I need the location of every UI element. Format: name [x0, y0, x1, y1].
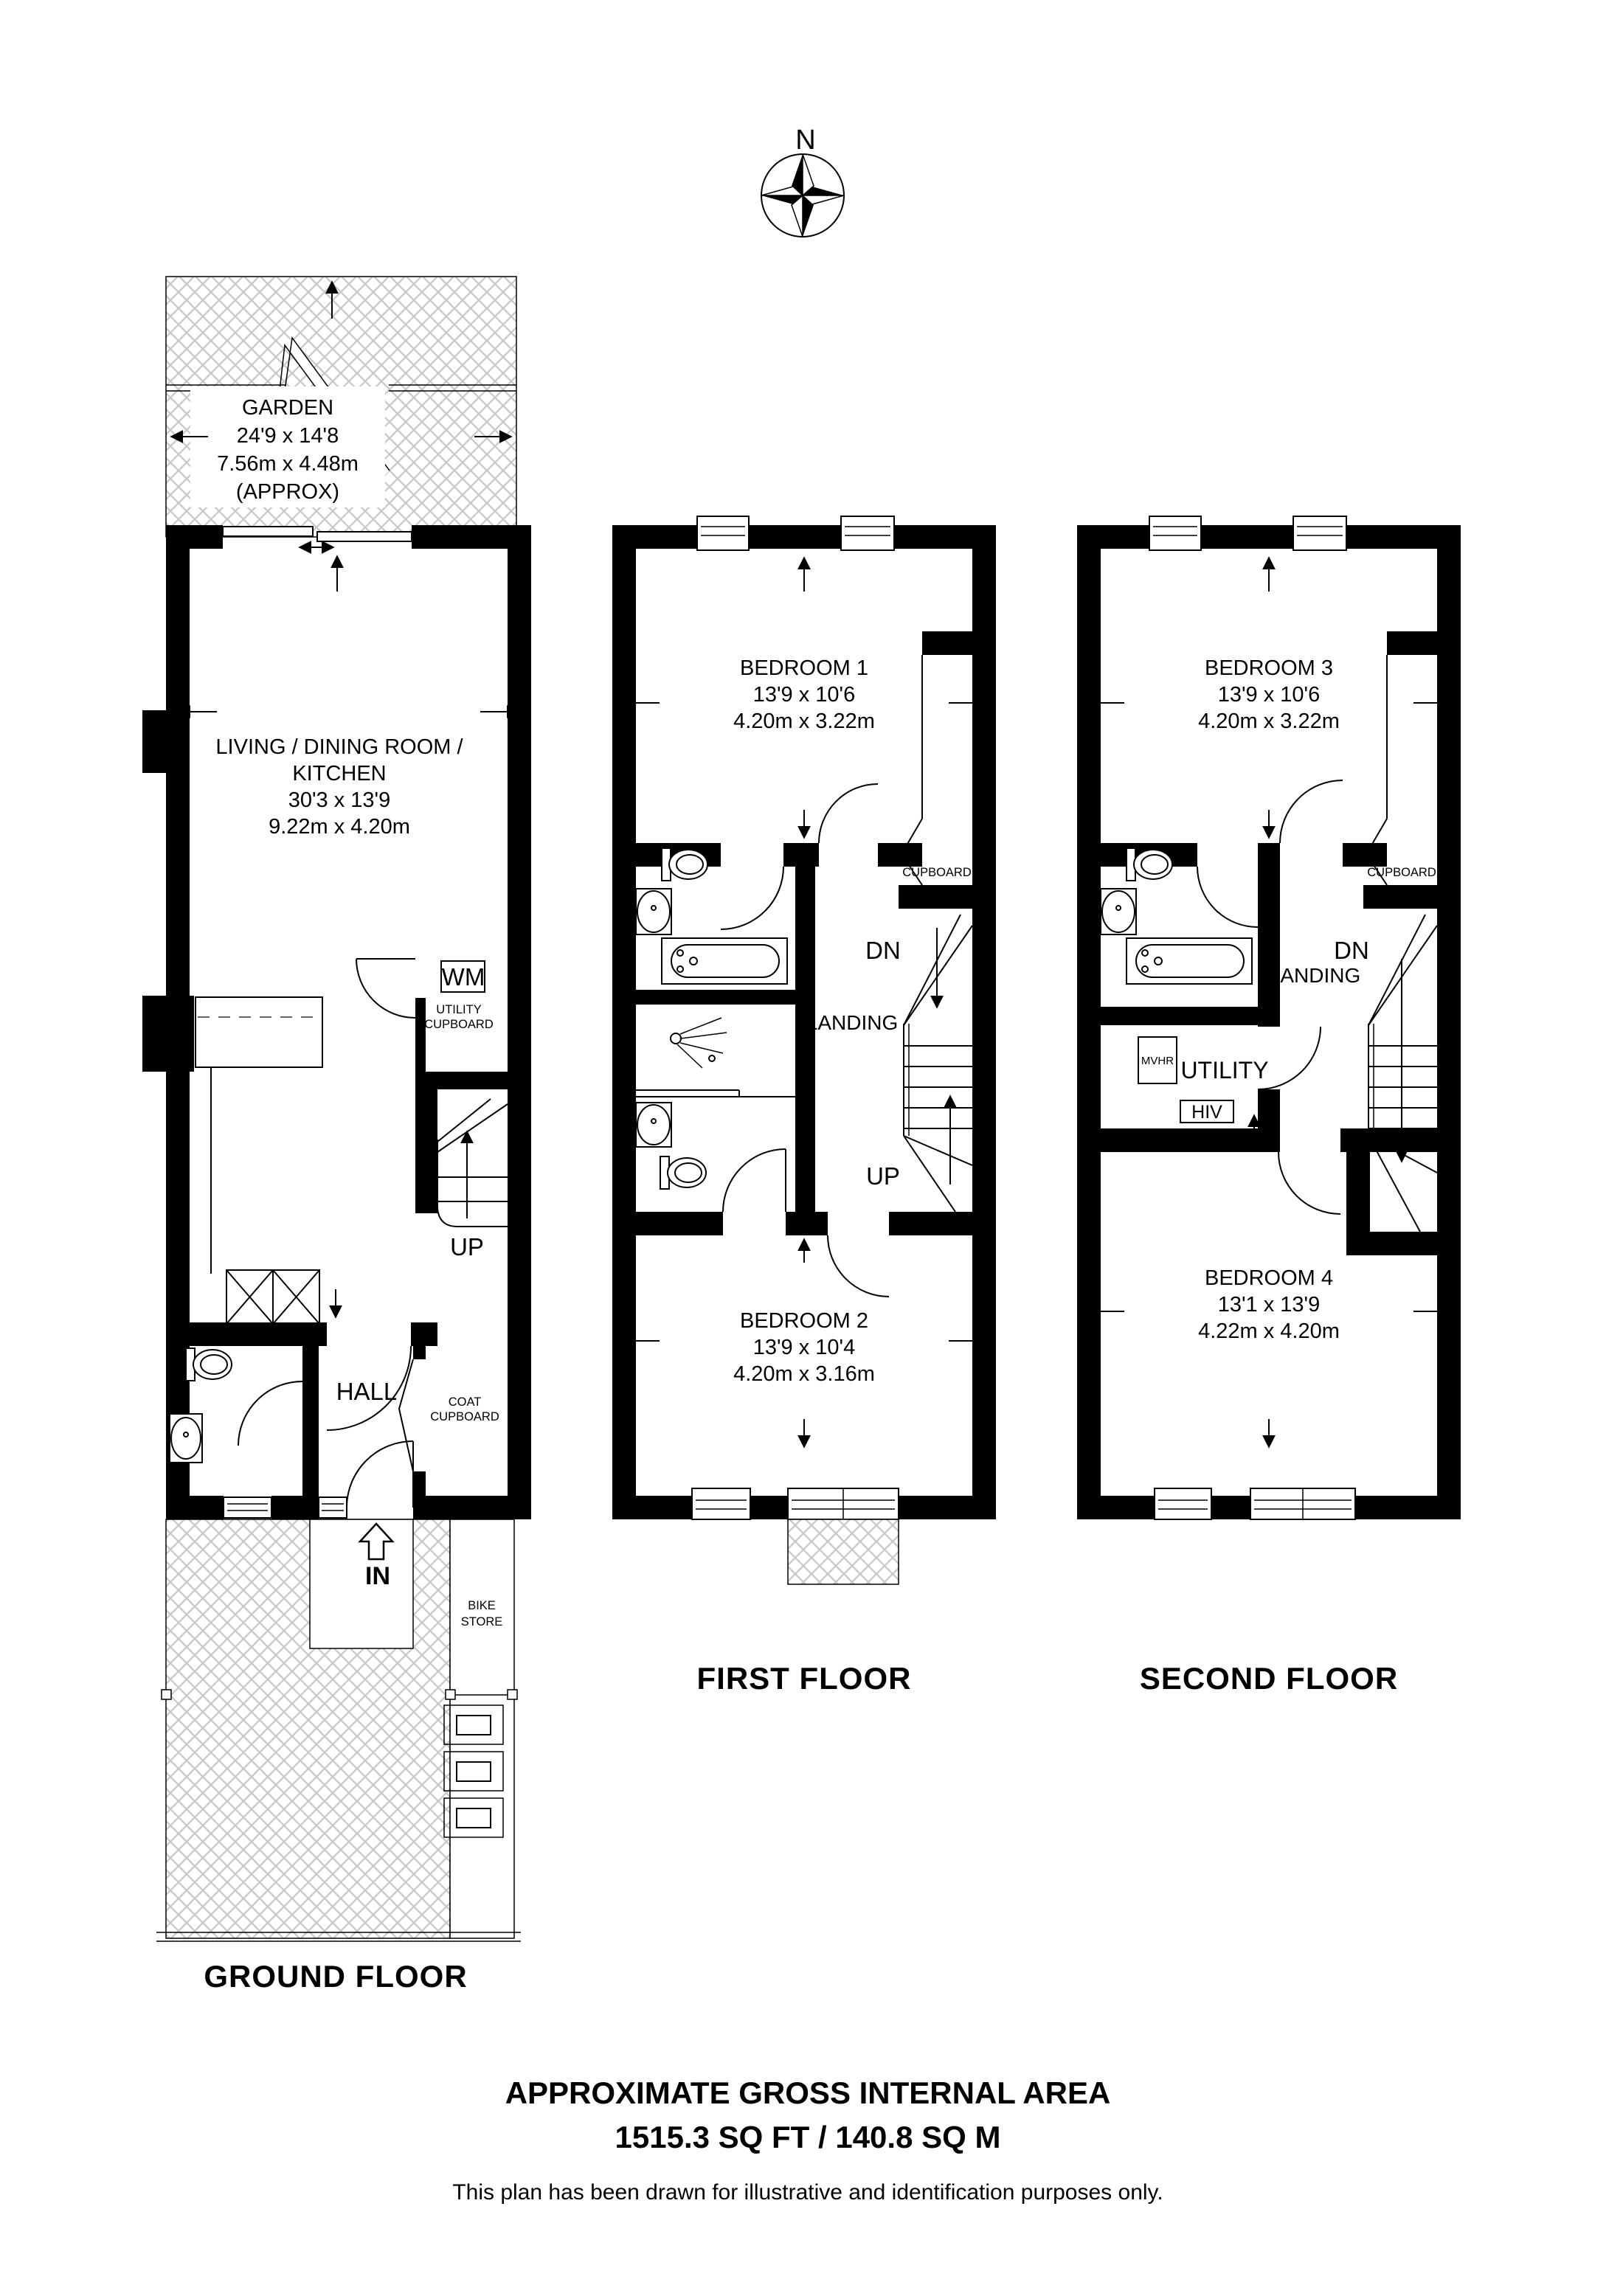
washing-machine-label: WM: [442, 963, 485, 991]
window: [841, 516, 894, 550]
living-room-label-line2: KITCHEN: [292, 762, 386, 785]
area-title: APPROXIMATE GROSS INTERNAL AREA: [505, 2075, 1111, 2110]
window: [1293, 516, 1346, 550]
first-floor-label: FIRST FLOOR: [697, 1661, 912, 1696]
coat-cupboard-label-line1: COAT: [449, 1395, 482, 1409]
bedroom-4-label: BEDROOM 4: [1205, 1266, 1333, 1290]
hiu-label: HIV: [1191, 1102, 1222, 1123]
bedroom-1-dims-imperial: 13'9 x 10'6: [753, 683, 855, 707]
coat-cupboard-label-line2: CUPBOARD: [430, 1410, 499, 1423]
bike-store-label-line1: BIKE: [468, 1599, 496, 1612]
ff-cupboard-label: CUPBOARD: [902, 866, 972, 879]
window: [224, 1497, 271, 1518]
juliet-balcony: [788, 1519, 899, 1584]
garden-label: GARDEN: [242, 396, 333, 420]
window: [319, 1497, 347, 1518]
bedroom-2-label: BEDROOM 2: [740, 1309, 868, 1333]
window: [1250, 1488, 1355, 1519]
bedroom-3-dims-metric: 4.20m x 3.22m: [1198, 710, 1340, 733]
bike-store: [450, 1519, 514, 1938]
sf-dn-label: DN: [1334, 937, 1369, 964]
entrance-label: IN: [365, 1562, 390, 1590]
toilet-icon: [662, 848, 707, 881]
garden-dims-imperial: 24'9 x 14'8: [237, 424, 339, 448]
bike-store-label-line2: STORE: [461, 1615, 503, 1629]
compass-north-label: N: [795, 125, 815, 156]
toilet-icon: [660, 1156, 706, 1189]
garden-area: GARDEN 24'9 x 14'8 7.56m x 4.48m (APPROX…: [166, 277, 516, 537]
sink-icon: [170, 1414, 202, 1463]
mvhr-label: MVHR: [1141, 1055, 1174, 1067]
utility-cupboard-label-line1: UTILITY: [436, 1003, 481, 1016]
sink-icon: [1101, 889, 1136, 934]
living-room-dims-metric: 9.22m x 4.20m: [269, 815, 410, 839]
bedroom-1-dims-metric: 4.20m x 3.22m: [733, 710, 875, 733]
area-value: 1515.3 SQ FT / 140.8 SQ M: [615, 2120, 1001, 2154]
living-room-dims-imperial: 30'3 x 13'9: [288, 788, 390, 812]
bath-icon: [662, 938, 787, 984]
sink-icon: [636, 889, 671, 934]
sf-cupboard-label: CUPBOARD: [1367, 866, 1436, 879]
bedroom-2-dims-metric: 4.20m x 3.16m: [733, 1362, 875, 1386]
window: [1155, 1488, 1211, 1519]
ground-floor-label: GROUND FLOOR: [204, 1959, 467, 1994]
utility-label: UTILITY: [1180, 1057, 1268, 1083]
living-room-label-line1: LIVING / DINING ROOM /: [215, 735, 463, 759]
sink-icon: [636, 1103, 671, 1147]
bedroom-2-dims-imperial: 13'9 x 10'4: [753, 1336, 855, 1359]
toilet-icon: [1127, 848, 1172, 881]
bedroom-3-dims-imperial: 13'9 x 10'6: [1218, 683, 1320, 707]
ff-up-label: UP: [866, 1162, 900, 1190]
toilet-icon: [186, 1348, 232, 1381]
front-garden-area: IN BIKE STORE: [156, 1519, 521, 1941]
garden-approx: (APPROX): [236, 480, 339, 504]
window: [692, 1488, 750, 1519]
bedroom-4-dims-imperial: 13'1 x 13'9: [1218, 1293, 1320, 1317]
window: [1149, 516, 1201, 550]
bath-icon: [1127, 938, 1252, 984]
bedroom-1-label: BEDROOM 1: [740, 656, 868, 680]
stairs-up-label: UP: [450, 1233, 484, 1260]
bedroom-4-dims-metric: 4.22m x 4.20m: [1198, 1319, 1340, 1343]
disclaimer: This plan has been drawn for illustrativ…: [452, 2180, 1163, 2205]
bedroom-3-label: BEDROOM 3: [1205, 656, 1333, 680]
ff-dn-label: DN: [865, 937, 901, 964]
window: [697, 516, 749, 550]
second-floor-label: SECOND FLOOR: [1140, 1661, 1398, 1696]
garden-dims-metric: 7.56m x 4.48m: [217, 452, 359, 476]
floorplan-canvas: N GARDEN 24'9 x 14'8 7.56m x 4.48m (APPR…: [0, 0, 1623, 2296]
hall-label: HALL: [336, 1378, 398, 1405]
ff-landing-label: LANDING: [806, 1011, 898, 1034]
window: [788, 1488, 899, 1519]
utility-cupboard-label-line2: CUPBOARD: [424, 1018, 494, 1031]
sf-landing-label: LANDING: [1269, 964, 1360, 987]
